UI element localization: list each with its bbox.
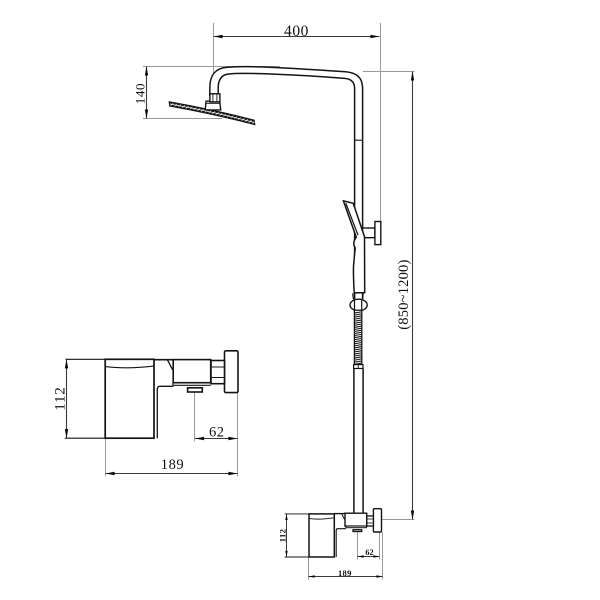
svg-text:189: 189 — [338, 568, 352, 578]
svg-text:140: 140 — [133, 83, 148, 104]
svg-text:400: 400 — [284, 23, 309, 40]
svg-text:112: 112 — [53, 386, 69, 410]
svg-text:62: 62 — [365, 548, 373, 557]
svg-text:112: 112 — [277, 529, 287, 542]
svg-text:(850~1200): (850~1200) — [396, 259, 412, 329]
svg-text:62: 62 — [209, 424, 225, 440]
svg-text:189: 189 — [161, 457, 185, 473]
